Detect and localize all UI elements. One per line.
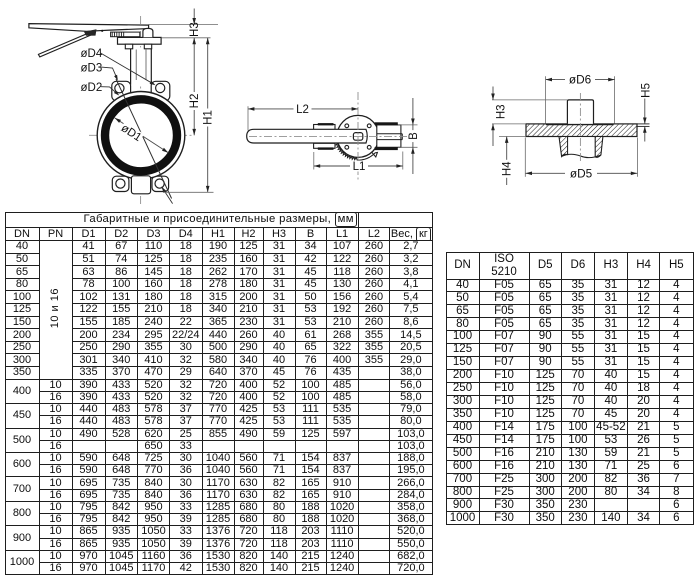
- svg-text:H4: H4: [502, 161, 514, 176]
- svg-text:B: B: [408, 132, 420, 140]
- svg-text:H3: H3: [189, 22, 201, 37]
- svg-text:L2: L2: [296, 104, 309, 116]
- svg-text:øD4: øD4: [81, 48, 103, 60]
- svg-text:H3: H3: [495, 104, 507, 119]
- svg-text:H1: H1: [202, 110, 214, 125]
- svg-text:øD6: øD6: [569, 73, 592, 87]
- svg-text:øD2: øD2: [81, 82, 103, 94]
- svg-text:H5: H5: [638, 83, 652, 99]
- svg-text:H2: H2: [189, 94, 201, 109]
- svg-text:øD3: øD3: [81, 62, 103, 74]
- svg-text:øD5: øD5: [570, 167, 593, 181]
- svg-text:L1: L1: [353, 161, 366, 173]
